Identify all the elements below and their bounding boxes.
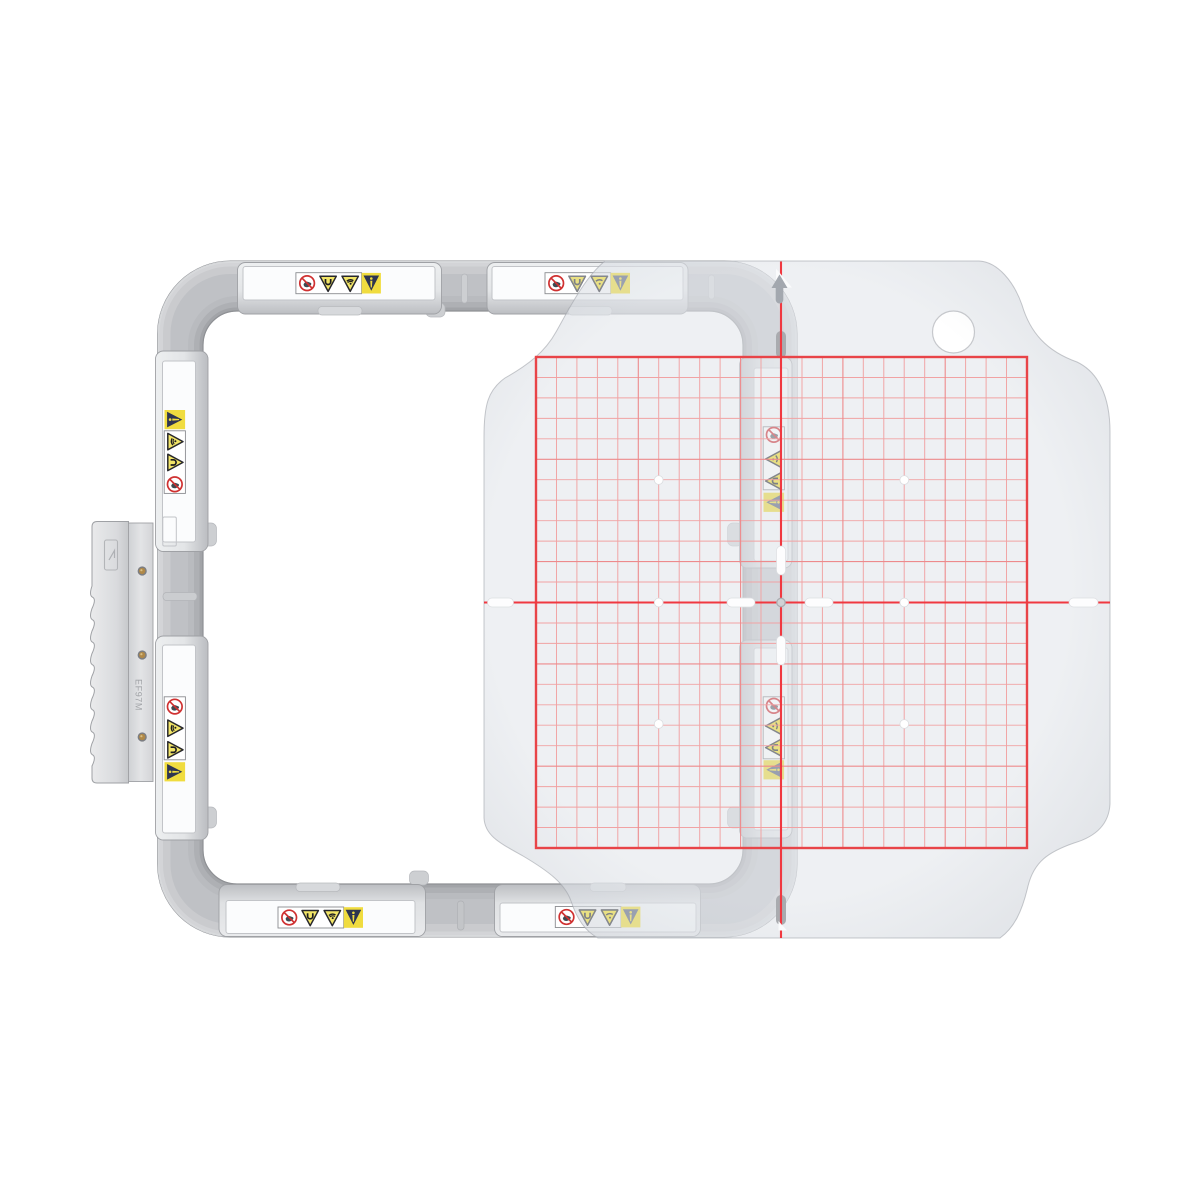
- svg-text:EF97M: EF97M: [134, 679, 144, 711]
